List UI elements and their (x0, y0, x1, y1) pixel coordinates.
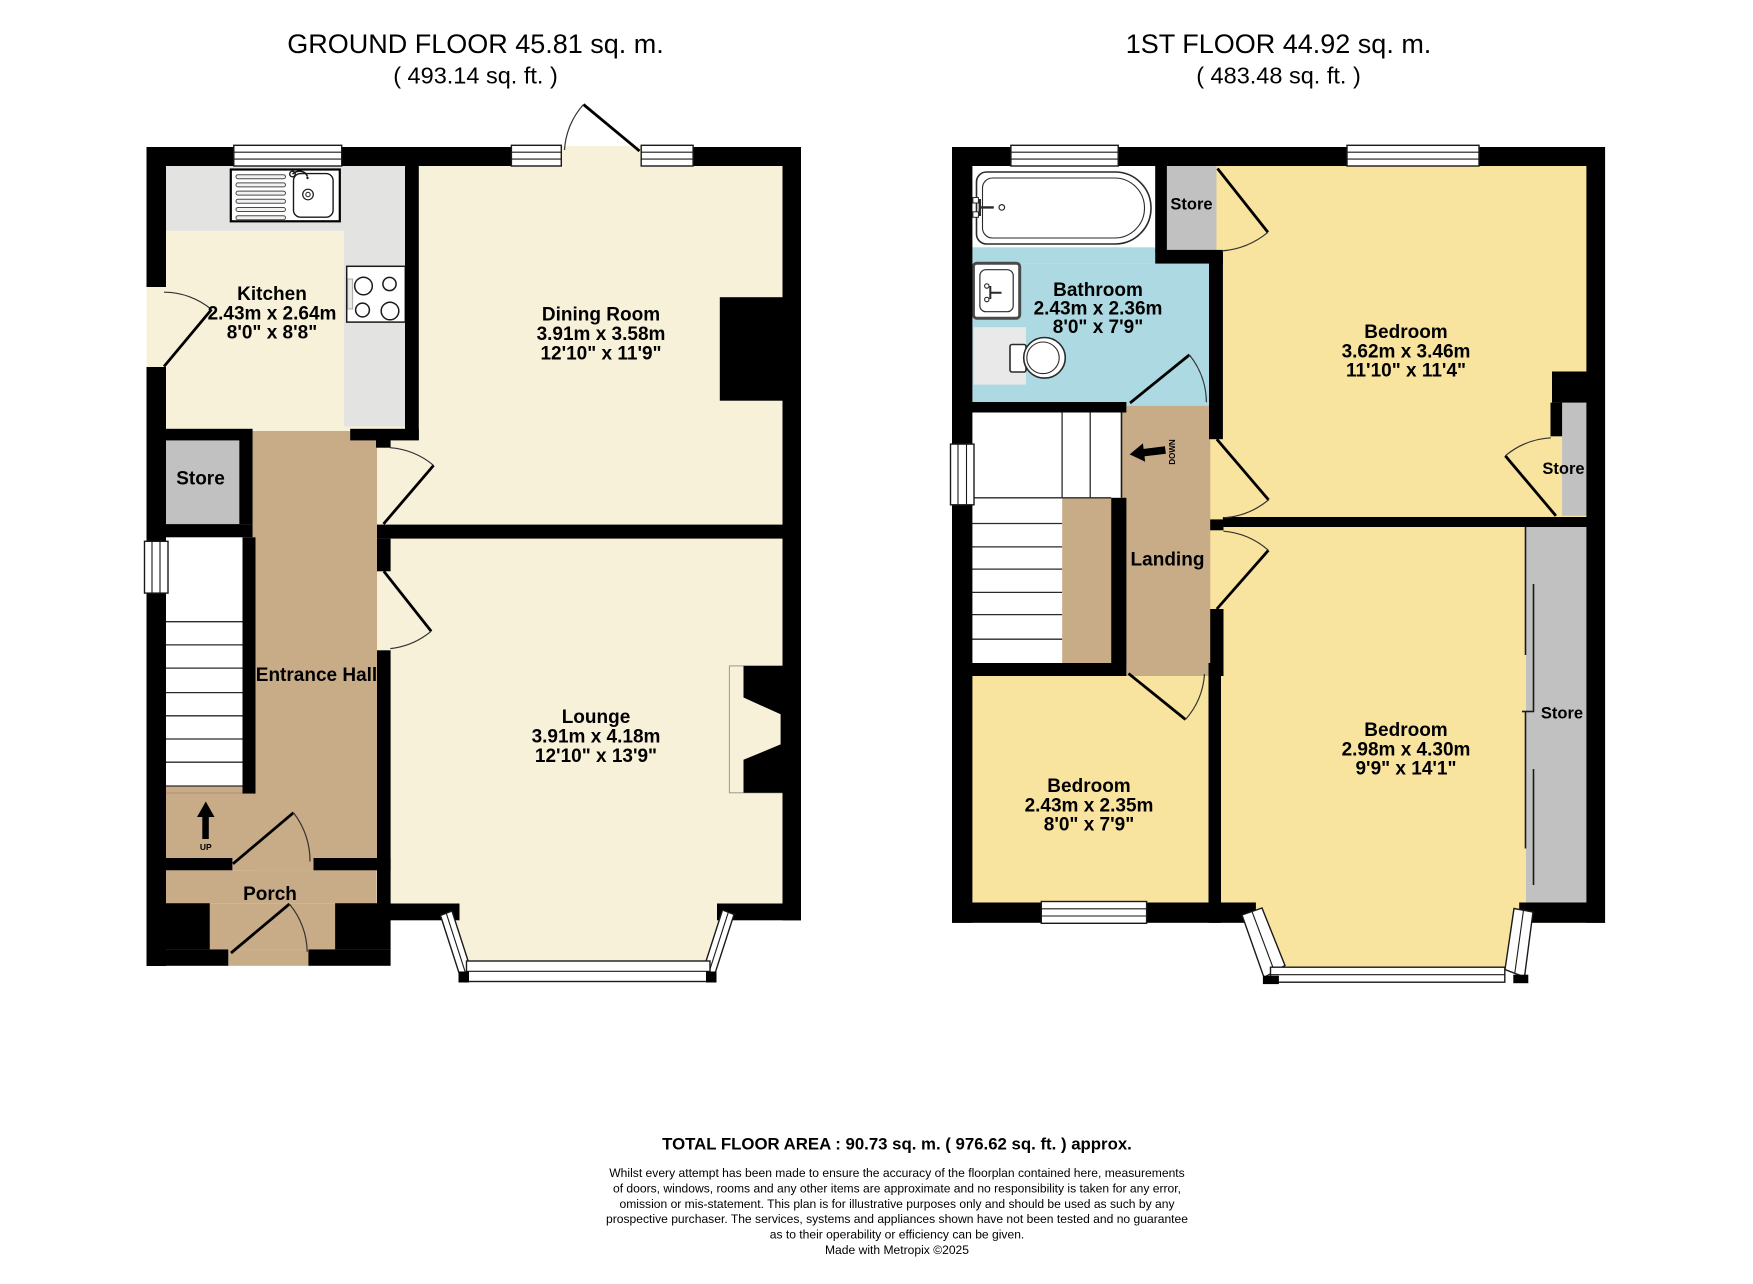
svg-text:Dining Room: Dining Room (542, 304, 660, 325)
svg-text:( 483.48 sq. ft. ): ( 483.48 sq. ft. ) (1196, 63, 1361, 89)
svg-text:Porch: Porch (243, 884, 297, 905)
svg-text:Store: Store (1170, 196, 1212, 214)
svg-text:12'10" x 11'9": 12'10" x 11'9" (540, 343, 661, 364)
svg-text:TOTAL FLOOR AREA : 90.73 sq. m: TOTAL FLOOR AREA : 90.73 sq. m. ( 976.62… (662, 1135, 1132, 1154)
svg-text:8'0" x 7'9": 8'0" x 7'9" (1044, 814, 1134, 835)
svg-text:8'0" x 8'8": 8'0" x 8'8" (227, 322, 317, 343)
svg-text:Store: Store (1542, 460, 1584, 478)
svg-text:Whilst every attempt has been: Whilst every attempt has been made to en… (609, 1166, 1184, 1180)
svg-text:Made with Metropix ©2025: Made with Metropix ©2025 (825, 1243, 969, 1257)
svg-text:Lounge: Lounge (562, 707, 631, 728)
svg-text:Store: Store (1541, 705, 1583, 723)
svg-text:Store: Store (176, 468, 225, 489)
svg-text:Landing: Landing (1131, 549, 1205, 570)
svg-text:Bedroom: Bedroom (1364, 720, 1447, 741)
svg-text:12'10" x 13'9": 12'10" x 13'9" (535, 746, 657, 767)
svg-text:GROUND FLOOR 45.81 sq. m.: GROUND FLOOR 45.81 sq. m. (287, 29, 664, 59)
svg-text:3.91m x 3.58m: 3.91m x 3.58m (537, 324, 666, 345)
svg-text:DOWN: DOWN (1168, 439, 1177, 465)
svg-text:11'10" x 11'4": 11'10" x 11'4" (1346, 360, 1466, 381)
svg-text:2.98m x 4.30m: 2.98m x 4.30m (1342, 739, 1471, 760)
svg-text:1ST FLOOR 44.92 sq. m.: 1ST FLOOR 44.92 sq. m. (1126, 29, 1432, 59)
svg-text:8'0" x 7'9": 8'0" x 7'9" (1053, 317, 1143, 338)
svg-text:UP: UP (200, 842, 212, 852)
svg-text:Kitchen: Kitchen (237, 284, 307, 305)
svg-text:as to their operability or eff: as to their operability or efficiency ca… (770, 1228, 1025, 1242)
svg-text:prospective purchaser. The ser: prospective purchaser. The services, sys… (606, 1212, 1188, 1226)
svg-text:2.43m x 2.35m: 2.43m x 2.35m (1025, 795, 1154, 816)
svg-text:Bedroom: Bedroom (1364, 322, 1447, 343)
svg-text:2.43m x 2.64m: 2.43m x 2.64m (208, 303, 337, 324)
svg-text:Bedroom: Bedroom (1047, 776, 1130, 797)
svg-text:3.91m x 4.18m: 3.91m x 4.18m (532, 726, 661, 747)
svg-text:( 493.14 sq. ft. ): ( 493.14 sq. ft. ) (393, 63, 558, 89)
svg-text:Entrance Hall: Entrance Hall (256, 665, 377, 686)
svg-text:9'9" x 14'1": 9'9" x 14'1" (1355, 758, 1456, 779)
svg-text:3.62m x 3.46m: 3.62m x 3.46m (1342, 341, 1471, 362)
svg-text:of doors, windows, rooms and a: of doors, windows, rooms and any other i… (613, 1181, 1181, 1195)
svg-text:omission or mis-statement. Thi: omission or mis-statement. This plan is … (619, 1197, 1175, 1211)
